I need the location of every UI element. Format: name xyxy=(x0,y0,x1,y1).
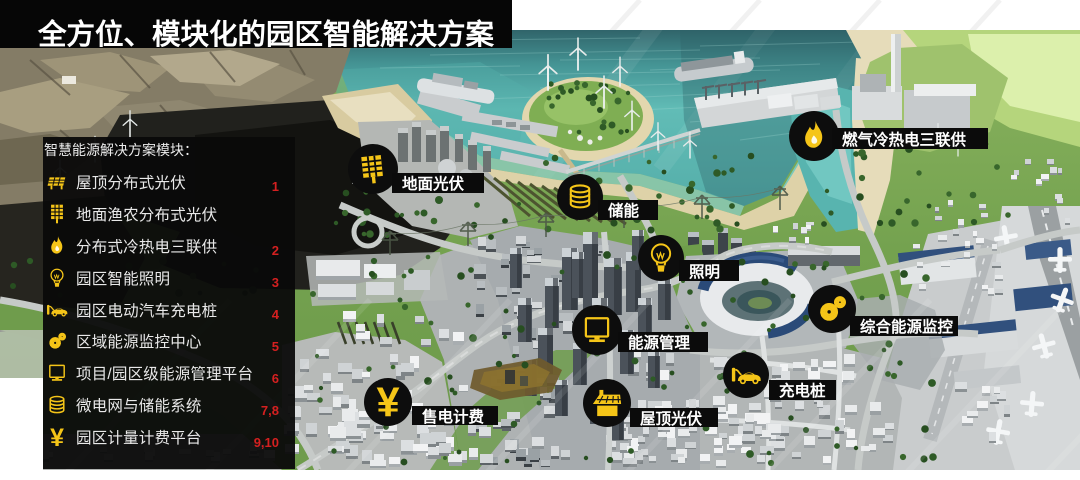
svg-text:¥: ¥ xyxy=(50,425,64,449)
svg-text:¥: ¥ xyxy=(376,382,399,422)
